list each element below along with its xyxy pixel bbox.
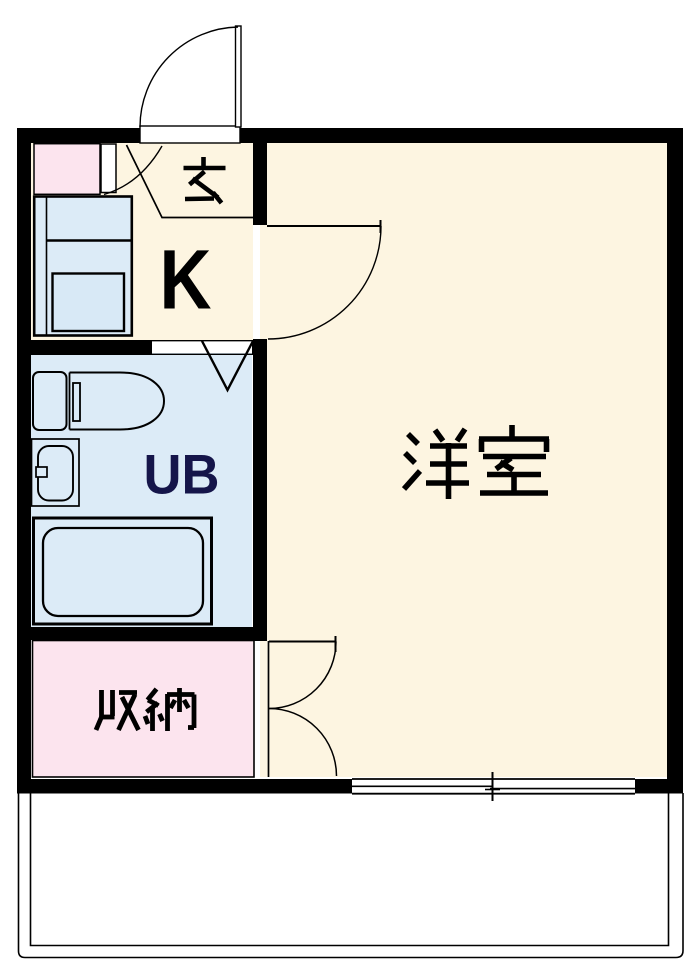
svg-text:K: K [160, 233, 212, 327]
svg-text:UB: UB [144, 444, 220, 506]
